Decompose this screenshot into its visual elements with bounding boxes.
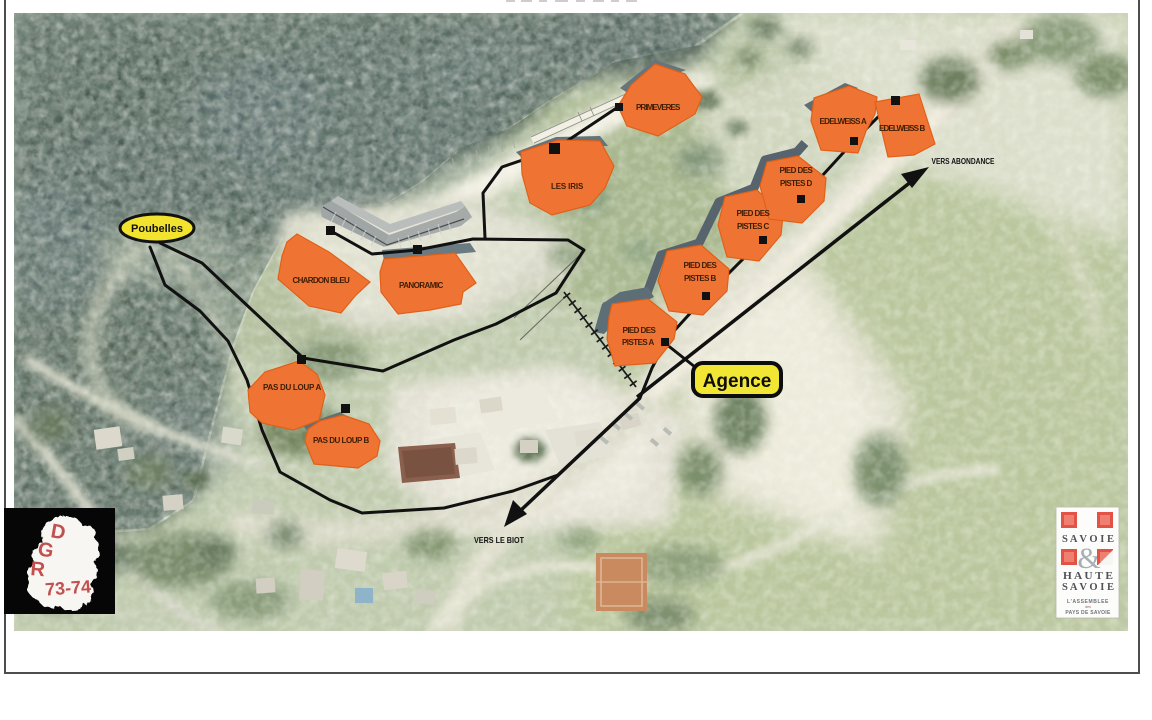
svg-text:CHARDON BLEU: CHARDON BLEU — [293, 276, 351, 285]
svg-text:PIED DES: PIED DES — [780, 166, 814, 175]
svg-text:VERS LE BIOT: VERS LE BIOT — [474, 535, 525, 545]
svg-text:PIED DES: PIED DES — [684, 261, 718, 270]
svg-text:R: R — [30, 558, 47, 581]
svg-text:73-74: 73-74 — [44, 576, 91, 599]
svg-text:S A V O I E: S A V O I E — [1062, 582, 1114, 593]
svg-text:VERS ABONDANCE: VERS ABONDANCE — [932, 157, 996, 166]
svg-text:PAS DU LOUP B: PAS DU LOUP B — [313, 436, 370, 445]
svg-text:PRIMEVERES: PRIMEVERES — [636, 103, 681, 112]
svg-text:Agence: Agence — [703, 371, 772, 392]
svg-text:PISTES B: PISTES B — [684, 274, 717, 283]
svg-text:PIED DES: PIED DES — [623, 326, 657, 335]
svg-text:PAYS DE SAVOIE: PAYS DE SAVOIE — [1065, 610, 1111, 616]
svg-text:PISTES C: PISTES C — [737, 222, 770, 231]
svg-text:PAS DU LOUP A: PAS DU LOUP A — [263, 383, 322, 392]
svg-text:PISTES A: PISTES A — [622, 338, 655, 347]
svg-text:PANORAMIC: PANORAMIC — [399, 281, 444, 290]
svg-text:PIED DES: PIED DES — [737, 209, 771, 218]
svg-text:LES IRIS: LES IRIS — [551, 182, 584, 191]
svg-text:H A U T E: H A U T E — [1063, 571, 1113, 582]
svg-text:des: des — [1085, 605, 1091, 609]
svg-text:EDELWEISS B: EDELWEISS B — [879, 124, 926, 133]
svg-text:EDELWEISS A: EDELWEISS A — [820, 117, 868, 126]
svg-text:PISTES D: PISTES D — [780, 179, 813, 188]
svg-text:Poubelles: Poubelles — [131, 223, 183, 235]
